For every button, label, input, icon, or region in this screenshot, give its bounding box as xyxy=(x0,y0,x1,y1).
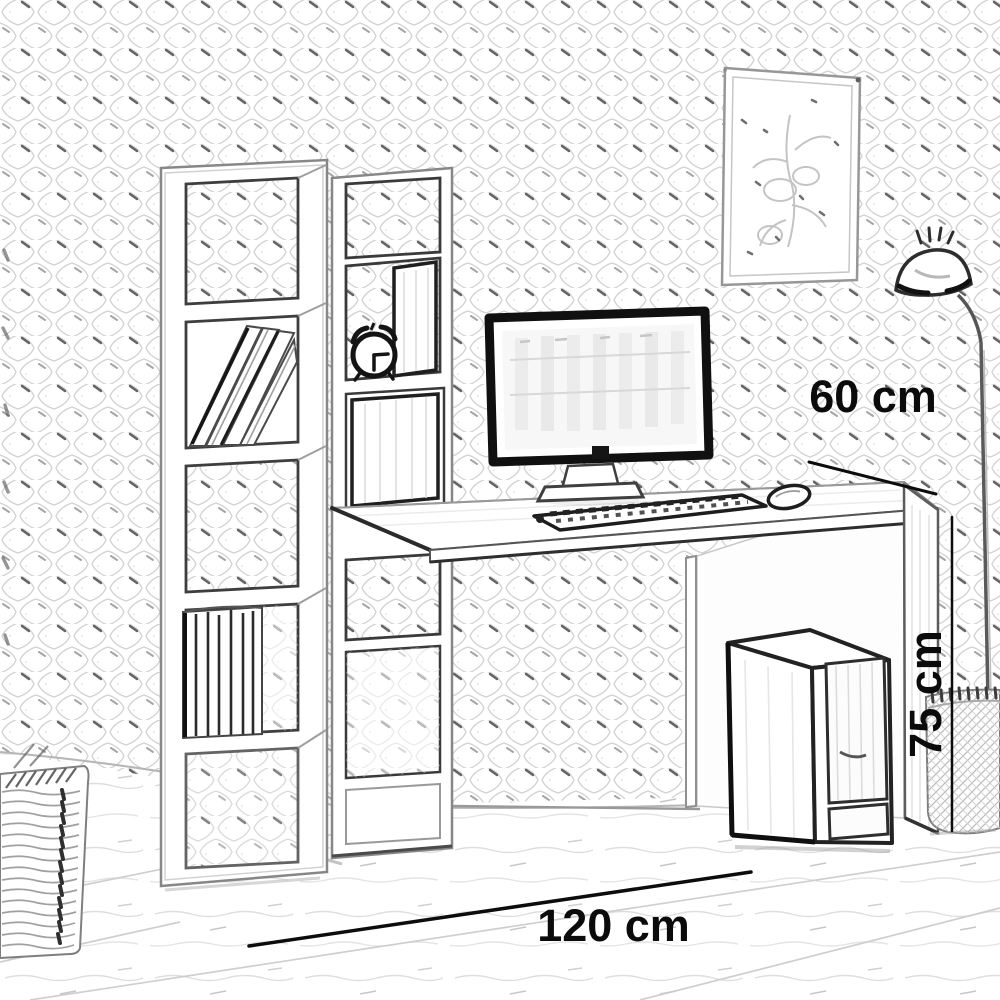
monitor-stand-base xyxy=(538,483,643,501)
pc-tower xyxy=(728,630,892,843)
pc-side-face xyxy=(728,643,815,842)
picture-frame xyxy=(722,68,860,285)
pc-lower-bezel xyxy=(829,804,888,839)
sketch-drawing xyxy=(0,0,1000,1000)
tower-compartment-5 xyxy=(186,748,298,868)
column-compartment-1 xyxy=(346,178,440,258)
column-compartment-6 xyxy=(346,784,440,844)
monitor-power-button xyxy=(592,446,609,459)
desk-middle-divider xyxy=(686,556,696,807)
sketch-scene: 60 cm 75 cm 120 cm xyxy=(0,0,1000,1000)
bookshelf-tower xyxy=(161,160,327,886)
tower-compartment-1 xyxy=(186,178,298,304)
dimension-label-width: 120 cm xyxy=(526,901,701,951)
column-compartment-4 xyxy=(346,554,440,640)
alarm-clock xyxy=(353,323,395,380)
pc-front-bezel xyxy=(826,658,887,803)
wicker-basket xyxy=(0,744,89,958)
dimension-label-depth: 60 cm xyxy=(803,372,943,422)
tower-compartment-3 xyxy=(186,460,298,592)
standing-books xyxy=(183,607,262,738)
dimension-label-height: 75 cm xyxy=(900,609,952,779)
